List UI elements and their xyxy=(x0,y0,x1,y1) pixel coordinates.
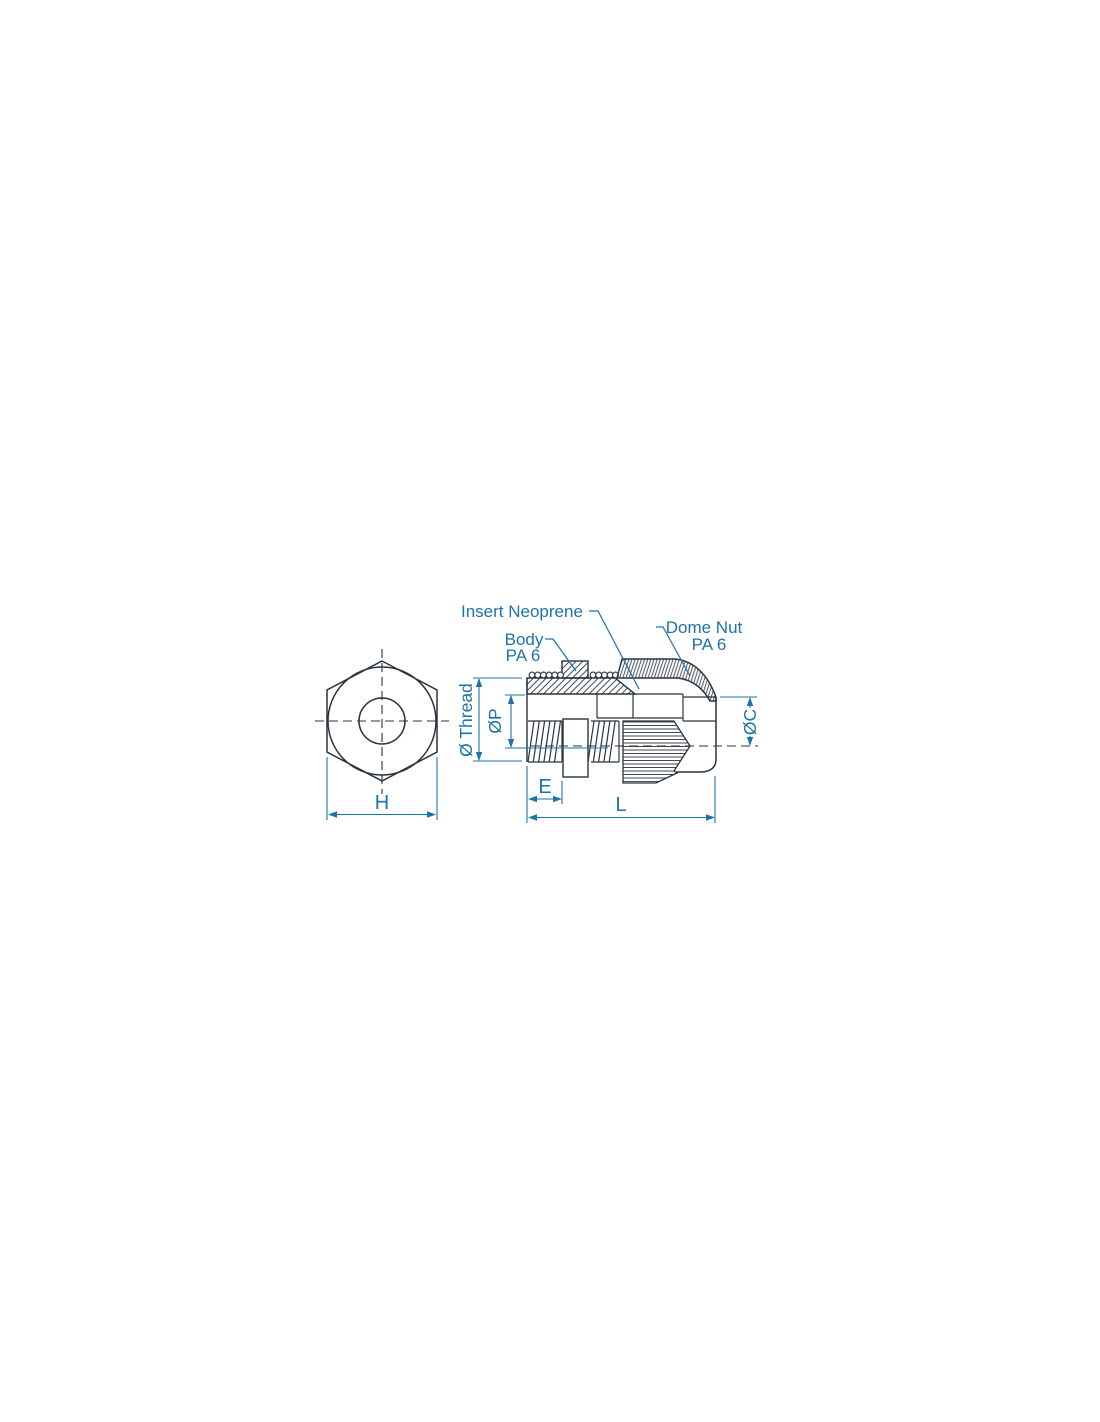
label-insert-neoprene: Insert Neoprene xyxy=(461,602,583,621)
arrowhead-right-icon xyxy=(553,796,562,802)
dim-label-L: L xyxy=(615,794,626,816)
dim-label-C: ØC xyxy=(740,709,760,735)
arrowhead-down-icon xyxy=(476,752,482,761)
arrowhead-down-icon xyxy=(508,739,514,748)
dome-nut-knurl-ring xyxy=(623,721,690,783)
cable-gland-drawing: H xyxy=(0,0,1100,1422)
label-dome-nut-material: PA 6 xyxy=(692,635,727,654)
arrowhead-left-icon xyxy=(328,811,337,817)
arrowhead-right-icon xyxy=(427,811,436,817)
dim-label-H: H xyxy=(375,792,389,814)
dim-label-thread: Ø Thread xyxy=(456,683,476,757)
dim-label-P: ØP xyxy=(485,708,505,733)
internal-bore-lines xyxy=(597,694,716,721)
arrowhead-up-icon xyxy=(508,695,514,704)
arrowhead-left-icon xyxy=(528,796,537,802)
gland-side-view xyxy=(527,659,758,783)
arrowhead-up-icon xyxy=(747,697,753,706)
body-section-band xyxy=(527,678,635,694)
thread-lines-right xyxy=(588,721,619,762)
thread-lines-left xyxy=(528,721,562,762)
arrowhead-up-icon xyxy=(476,678,482,687)
arrowhead-left-icon xyxy=(528,814,537,820)
label-body-material: PA 6 xyxy=(506,646,541,665)
dim-label-E: E xyxy=(538,776,551,798)
technical-drawing-page: H xyxy=(0,0,1100,1422)
arrowhead-right-icon xyxy=(706,814,715,820)
arrowhead-down-icon xyxy=(747,737,753,746)
hex-front-view xyxy=(315,649,449,794)
